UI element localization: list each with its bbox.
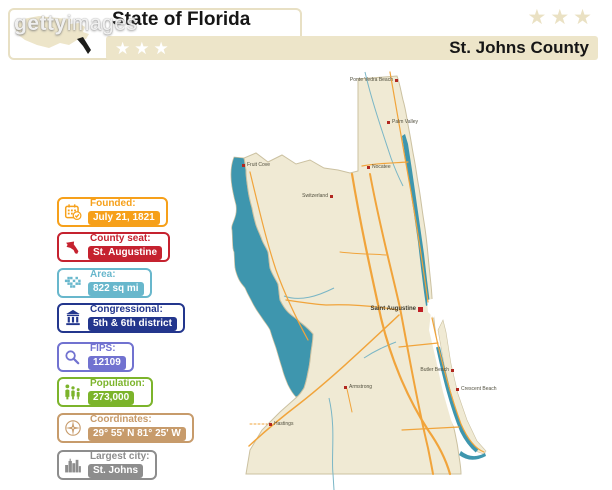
badge-fips-title: FIPS: (90, 344, 126, 354)
town-marker (387, 121, 390, 124)
town-marker (367, 166, 370, 169)
town-name: Saint Augustine (371, 306, 416, 312)
town-name: Nocatee (372, 165, 391, 170)
badge-congressional: Congressional:5th & 6th district (57, 303, 185, 333)
county-land (244, 76, 461, 474)
badge-area-value: 822 sq mi (88, 282, 144, 297)
town-marker (330, 195, 333, 198)
badge-county-seat-value: St. Augustine (88, 246, 162, 261)
compass-icon (62, 418, 83, 439)
town-marker (269, 423, 272, 426)
town-label-butler-beach: Butler Beach (420, 368, 454, 373)
town-name: Palm Valley (392, 120, 418, 125)
skyline-icon (62, 455, 83, 476)
badge-county-seat: County seat:St. Augustine (57, 232, 170, 262)
badge-fips: FIPS:12109 (57, 342, 134, 372)
town-name: Ponte Vedra Beach (350, 78, 393, 83)
florida-icon (62, 237, 83, 258)
town-name: Armstrong (349, 385, 372, 390)
town-label-switzerland: Switzerland (302, 194, 333, 199)
badge-population: Population:273,000 (57, 377, 153, 407)
town-label-armstrong: Armstrong (344, 385, 372, 390)
badge-fips-value: 12109 (88, 356, 126, 371)
badge-founded: Founded:July 21, 1821 (57, 197, 168, 227)
town-label-nocatee: Nocatee (367, 165, 391, 170)
town-marker (344, 386, 347, 389)
badge-coordinates-title: Coordinates: (90, 415, 186, 425)
badge-founded-value: July 21, 1821 (88, 211, 160, 226)
town-marker (242, 164, 245, 167)
family-icon (62, 382, 83, 403)
badge-population-title: Population: (90, 379, 145, 389)
town-label-hastings: Hastings (269, 422, 293, 427)
town-name: Fruit Cove (247, 163, 270, 168)
town-label-fruit-cove: Fruit Cove (242, 163, 270, 168)
badge-largest-city-title: Largest city: (90, 452, 149, 462)
badge-area: Area:822 sq mi (57, 268, 152, 298)
town-name: Crescent Beach (461, 387, 497, 392)
badge-population-value: 273,000 (88, 391, 134, 406)
badge-congressional-title: Congressional: (90, 305, 177, 315)
town-label-crescent-beach: Crescent Beach (456, 387, 497, 392)
town-name: Hastings (274, 422, 293, 427)
county-seat-label-saint-augustine: Saint Augustine (371, 306, 423, 312)
badge-coordinates-value: 29° 55' N 81° 25' W (88, 427, 186, 442)
town-marker (451, 369, 454, 372)
town-name: Butler Beach (420, 368, 449, 373)
capitol-icon (62, 308, 83, 329)
town-marker (395, 79, 398, 82)
badge-congressional-value: 5th & 6th district (88, 317, 177, 332)
badge-county-seat-title: County seat: (90, 234, 162, 244)
infographic-canvas: Ponte Vedra BeachPalm ValleyNocateeFruit… (0, 0, 612, 490)
pixel-map-icon (62, 273, 83, 294)
town-label-palm-valley: Palm Valley (387, 120, 418, 125)
town-marker (456, 388, 459, 391)
badge-area-title: Area: (90, 270, 144, 280)
badge-coordinates: Coordinates:29° 55' N 81° 25' W (57, 413, 194, 443)
badge-largest-city: Largest city:St. Johns (57, 450, 157, 480)
town-marker (418, 307, 423, 312)
town-label-ponte-vedra-beach: Ponte Vedra Beach (350, 78, 398, 83)
badge-largest-city-value: St. Johns (88, 464, 143, 479)
magnifier-icon (62, 347, 83, 368)
calendar-icon (62, 202, 83, 223)
badge-founded-title: Founded: (90, 199, 160, 209)
town-name: Switzerland (302, 194, 328, 199)
